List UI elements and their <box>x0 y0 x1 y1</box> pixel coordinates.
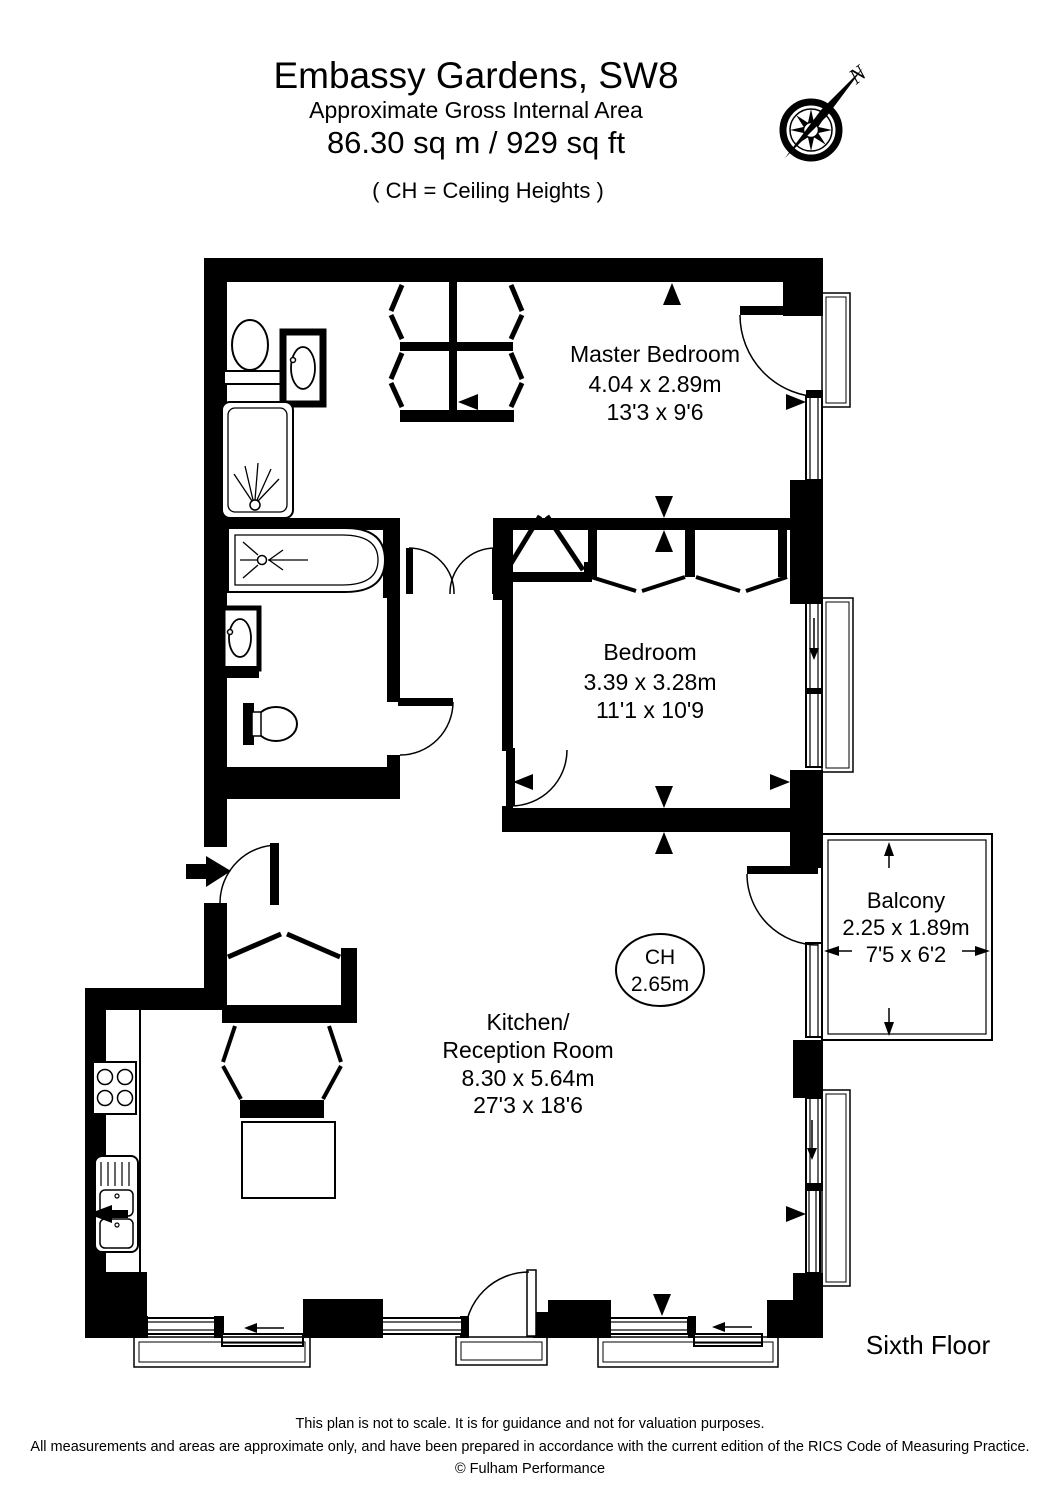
kitchen-right-window-lower <box>806 1190 820 1273</box>
kitchen-label: Kitchen/ Reception Room 8.30 x 5.64m 27'… <box>442 1009 613 1118</box>
kitchen-arrow-up-icon <box>655 832 673 854</box>
hall-double-doors <box>406 548 499 594</box>
footer-line1: This plan is not to scale. It is for gui… <box>295 1416 764 1432</box>
footer-line3: © Fulham Performance <box>455 1461 605 1477</box>
bottom-window-sill-2 <box>456 1337 547 1365</box>
bedroom-arrow-right-icon <box>770 774 790 790</box>
balcony-dim-m: 2.25 x 1.89m <box>842 915 969 940</box>
balcony-arrow-up-icon <box>884 842 894 868</box>
gross-area: 86.30 sq m / 929 sq ft <box>327 125 626 160</box>
shower <box>222 402 293 518</box>
bathroom-toilet <box>243 703 297 745</box>
entry-closet <box>228 934 340 957</box>
bottom-window-2 <box>382 1318 462 1334</box>
master-bedroom-name: Master Bedroom <box>570 341 740 367</box>
kitchen-cupboard <box>223 1026 341 1099</box>
kitchen-sink <box>95 1156 138 1252</box>
ceiling-height-badge: CH 2.65m <box>616 934 704 1006</box>
master-window-sill <box>822 293 850 407</box>
master-bedroom-window <box>806 397 822 480</box>
floorplan-drawing: Embassy Gardens, SW8 Approximate Gross I… <box>0 0 1059 1500</box>
master-arrow-right-icon <box>786 394 806 410</box>
kitchen-arrow-right-icon <box>786 1206 806 1222</box>
balcony-name: Balcony <box>867 888 945 913</box>
bedroom-arrow-left-icon <box>513 774 533 790</box>
kitchen-right-window-upper <box>806 1098 822 1184</box>
bottom-window-1-recessed <box>222 1334 303 1346</box>
page-title: Embassy Gardens, SW8 <box>273 55 678 96</box>
bottom-terrace-door <box>465 1270 536 1336</box>
bottom-window-1-arrow-icon <box>244 1323 284 1333</box>
kitchen-name-line2: Reception Room <box>442 1037 613 1063</box>
master-bedroom-door <box>740 306 822 397</box>
footer: This plan is not to scale. It is for gui… <box>30 1416 1029 1477</box>
kitchen-right-window-sill <box>822 1090 850 1286</box>
bedroom-arrow-up-icon <box>655 530 673 552</box>
kitchen-island <box>242 1122 335 1198</box>
header: Embassy Gardens, SW8 Approximate Gross I… <box>273 55 678 203</box>
walls <box>85 258 823 1338</box>
master-arrow-left-icon <box>458 394 478 410</box>
kitchen-arrow-down-icon <box>653 1294 671 1316</box>
bathroom-basin <box>223 608 259 678</box>
balcony-sliding-window <box>806 943 822 1037</box>
master-arrow-down-icon <box>655 496 673 518</box>
ch-note: ( CH = Ceiling Heights ) <box>372 178 604 203</box>
fixtures <box>93 320 385 1316</box>
ensuite-toilet <box>224 320 281 384</box>
master-arrow-up-icon <box>663 283 681 305</box>
master-bedroom-label: Master Bedroom 4.04 x 2.89m 13'3 x 9'6 <box>570 341 740 425</box>
kitchen-name-line1: Kitchen/ <box>486 1009 570 1035</box>
floor-label: Sixth Floor <box>866 1330 991 1360</box>
ensuite-basin <box>283 332 323 404</box>
bottom-window-sill-3 <box>598 1337 778 1367</box>
entry-door <box>220 843 279 905</box>
balcony-door <box>747 866 818 945</box>
compass-rose-icon: N <box>783 59 872 158</box>
bedroom-window-sill <box>822 598 853 772</box>
bedroom-arrow-down-icon <box>655 786 673 808</box>
bathroom-door <box>398 698 453 755</box>
bathtub <box>228 528 385 592</box>
page-subtitle: Approximate Gross Internal Area <box>309 97 643 123</box>
ch-label: CH <box>645 946 675 969</box>
footer-line2: All measurements and areas are approxima… <box>30 1439 1029 1455</box>
balcony-arrow-down-icon <box>884 1008 894 1036</box>
bottom-window-sill-1 <box>134 1337 310 1367</box>
bedroom-wardrobe-1 <box>591 577 685 591</box>
master-bedroom-dim-m: 4.04 x 2.89m <box>589 371 722 397</box>
bottom-window-3-recessed <box>694 1334 762 1346</box>
balcony-dim-ft: 7'5 x 6'2 <box>866 942 947 967</box>
bedroom-wardrobe-2 <box>696 577 787 591</box>
floorplan-page: Embassy Gardens, SW8 Approximate Gross I… <box>0 0 1059 1500</box>
master-bedroom-dim-ft: 13'3 x 9'6 <box>606 399 703 425</box>
bedroom-name: Bedroom <box>603 639 696 665</box>
kitchen-dim-m: 8.30 x 5.64m <box>462 1065 595 1091</box>
ch-value: 2.65m <box>631 973 689 996</box>
bedroom-dim-m: 3.39 x 3.28m <box>584 669 717 695</box>
kitchen-hob <box>93 1062 136 1114</box>
bedroom-label: Bedroom 3.39 x 3.28m 11'1 x 10'9 <box>584 639 717 723</box>
bottom-window-3-arrow-icon <box>712 1322 752 1332</box>
bedroom-dim-ft: 11'1 x 10'9 <box>596 697 704 723</box>
room-labels: Master Bedroom 4.04 x 2.89m 13'3 x 9'6 B… <box>442 341 990 1360</box>
kitchen-dim-ft: 27'3 x 18'6 <box>473 1092 583 1118</box>
bottom-window-1 <box>147 1318 215 1334</box>
balcony-label: Balcony 2.25 x 1.89m 7'5 x 6'2 <box>842 888 969 967</box>
bottom-window-3 <box>610 1318 688 1334</box>
bedroom-door <box>506 748 567 806</box>
